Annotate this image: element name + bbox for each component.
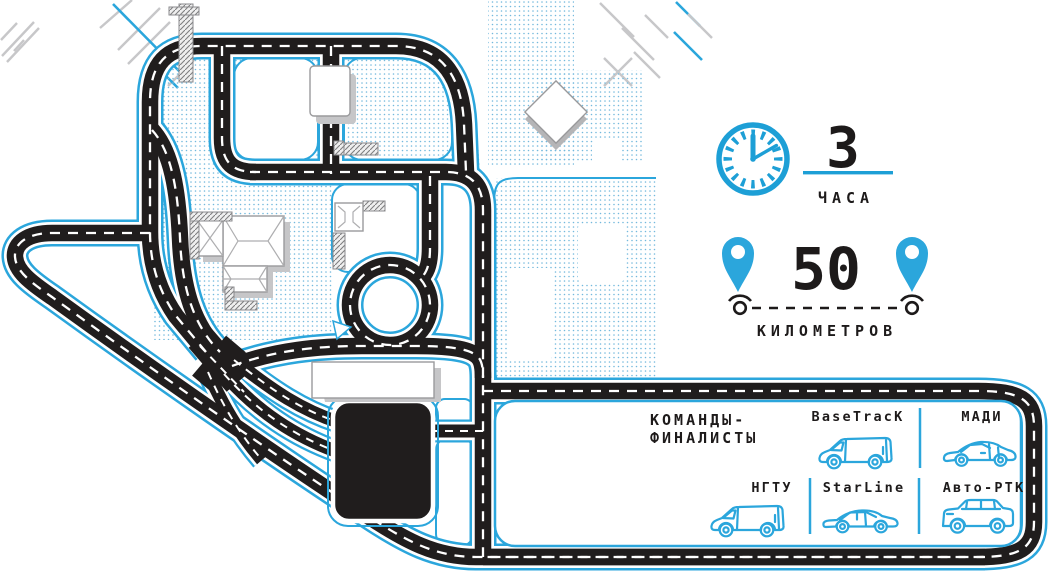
team-name: BaseTracK (812, 409, 905, 425)
finish-location-pin-icon (896, 237, 928, 292)
panel-title-line1: КОМАНДЫ- (650, 411, 746, 429)
duration-stat: 3 ЧАСА (719, 116, 893, 207)
distance-stat: 50 КИЛОМЕТРОВ (722, 235, 928, 340)
team-name: МАДИ (961, 409, 1002, 425)
team-name: НГТУ (751, 480, 792, 496)
team-name: StarLine (823, 480, 906, 496)
start-location-pin-icon (722, 237, 754, 292)
duration-underline (803, 171, 893, 174)
duration-unit: ЧАСА (818, 189, 874, 207)
distance-value: 50 (791, 235, 861, 303)
start-road-point-icon (729, 296, 751, 314)
team-name: Авто-РТК (943, 480, 1026, 496)
map-and-stats-canvas: 3 ЧАСА 50 КИЛОМЕТРОВ КОМАНДЫ- ФИНАЛИСТЫ (0, 0, 1063, 571)
paddock-area (328, 396, 438, 526)
distance-unit: КИЛОМЕТРОВ (757, 322, 897, 340)
panel-title-line2: ФИНАЛИСТЫ (650, 429, 758, 447)
track-infographic: 3 ЧАСА 50 КИЛОМЕТРОВ КОМАНДЫ- ФИНАЛИСТЫ (0, 0, 1063, 571)
finalists-panel: КОМАНДЫ- ФИНАЛИСТЫ BaseTracK МАДИ НГТУ S… (495, 401, 1025, 546)
clock-icon (719, 125, 787, 193)
finish-road-point-icon (901, 296, 923, 314)
